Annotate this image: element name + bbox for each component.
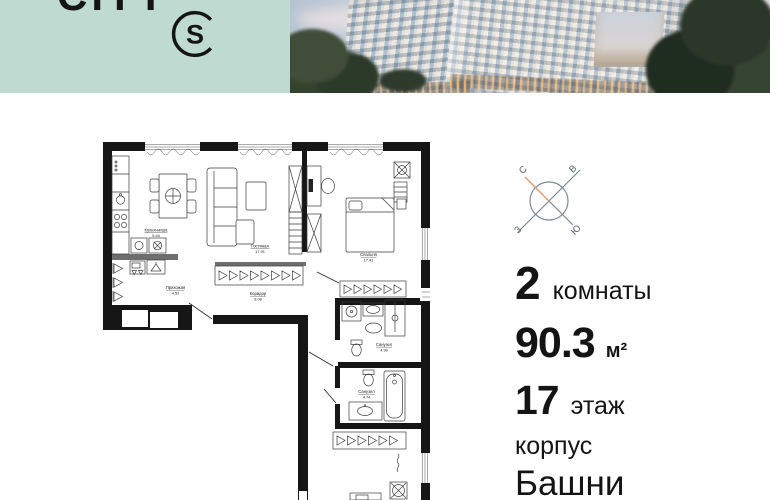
rooms-count: 2 — [515, 256, 540, 310]
hallway-wardrobe — [113, 260, 165, 302]
building-label: корпус — [515, 432, 624, 461]
wing-closet-hangers — [333, 432, 406, 449]
curtain-icon — [330, 149, 383, 155]
building-row: корпус Башни — [515, 432, 624, 500]
room-label-corridor: Коридор 8.08 — [250, 291, 267, 302]
svg-text:Гостиная: Гостиная — [251, 244, 269, 249]
compass-icon: С В З Ю — [505, 158, 595, 243]
svg-text:17.91: 17.91 — [255, 249, 265, 254]
svg-text:8.08: 8.08 — [254, 297, 262, 302]
svg-text:Прихожая: Прихожая — [166, 285, 185, 290]
listing-page: CITY S — [0, 0, 770, 500]
area-value: 90.3 — [515, 319, 595, 368]
dining-table — [150, 174, 196, 218]
toilet-icon — [351, 340, 362, 356]
coffee-table — [246, 182, 266, 210]
desk — [307, 166, 335, 206]
tree — [368, 62, 438, 93]
decor-plant-icon — [366, 323, 382, 333]
curtain-icon — [147, 149, 200, 155]
bedroom-closet-hangers — [340, 281, 406, 297]
bed — [346, 198, 406, 252]
shower-icon — [385, 300, 405, 336]
svg-text:5.44: 5.44 — [152, 233, 160, 238]
logo-letter: S — [186, 18, 204, 49]
pillow — [349, 201, 362, 210]
area-row: 90.3 м² — [515, 319, 627, 368]
cutoff-fixture — [350, 493, 381, 500]
floor-row: 17 этаж — [515, 377, 625, 424]
compass-label-s: Ю — [569, 223, 584, 238]
entry-door — [189, 303, 212, 319]
svg-text:4.74: 4.74 — [363, 395, 371, 400]
floor-label: этаж — [571, 392, 625, 421]
floor-drain-icon — [390, 482, 407, 499]
compass-label-w: З — [512, 224, 524, 236]
chair — [150, 179, 159, 192]
header: CITY S — [0, 0, 770, 93]
svg-text:Спальня: Спальня — [360, 252, 377, 257]
brand-wordmark: CITY — [57, 0, 169, 20]
compass-axis-south — [549, 201, 573, 225]
compass-needle-north — [525, 177, 549, 201]
towel-rail-icon — [397, 454, 399, 472]
bathroom1-door — [309, 352, 333, 366]
vent-shaft-icon — [394, 162, 410, 202]
svg-text:Кухня-ниша: Кухня-ниша — [145, 228, 169, 233]
kitchen-appliances — [131, 238, 166, 253]
walls — [103, 142, 430, 500]
bathtub-icon — [384, 371, 405, 421]
room-label-living: Гостиная 17.91 — [251, 244, 270, 255]
toilet-icon — [363, 370, 374, 386]
kitchen-counter — [112, 156, 129, 254]
svg-text:17.41: 17.41 — [364, 258, 374, 263]
room-label-kitchen: Кухня-ниша 5.44 — [145, 228, 169, 239]
svg-text:4.99: 4.99 — [380, 348, 388, 353]
chair — [187, 179, 196, 192]
room-label-hall: Прихожая 4.52 — [166, 285, 185, 296]
corridor-closet-hangers — [215, 266, 303, 285]
stove-icon — [114, 214, 126, 227]
desk-chair — [322, 179, 335, 194]
area-unit: м² — [606, 340, 627, 363]
curtain-icon — [240, 149, 291, 155]
svg-text:Санузел: Санузел — [376, 342, 393, 347]
monitor-icon — [309, 179, 314, 192]
svg-text:Коридор: Коридор — [250, 291, 267, 296]
compass-label-n: С — [517, 164, 530, 177]
vanity-sink-icon — [349, 402, 382, 420]
brand-block: CITY S — [0, 0, 290, 93]
building-name: Башни — [515, 464, 624, 500]
tree — [645, 0, 770, 93]
building-photo — [290, 0, 770, 93]
room-label-bedroom: Спальня 17.41 — [360, 252, 377, 263]
svg-text:Санузел: Санузел — [358, 389, 375, 394]
tv-unit — [289, 166, 302, 254]
floor-value: 17 — [515, 377, 559, 424]
sink-icon — [116, 196, 124, 204]
room-label-bathroom1: Санузел 4.99 — [376, 342, 393, 353]
bedroom-wardrobe — [307, 214, 321, 252]
compass-label-e: В — [567, 163, 579, 175]
room-label-bathroom2: Санузел 4.74 — [358, 389, 375, 400]
bedroom-door — [317, 272, 339, 283]
rooms-row: 2 комнаты — [515, 256, 651, 310]
chair — [150, 200, 159, 213]
rooms-label: комнаты — [553, 277, 652, 306]
floor-plan: Кухня-ниша 5.44 Гостиная 17.91 Спальня 1… — [103, 142, 433, 500]
nightstand — [397, 199, 406, 209]
chair — [187, 200, 196, 213]
svg-text:4.52: 4.52 — [172, 291, 180, 296]
bathroom2-door — [324, 389, 336, 403]
brand-logo-icon[interactable]: S — [170, 9, 220, 59]
